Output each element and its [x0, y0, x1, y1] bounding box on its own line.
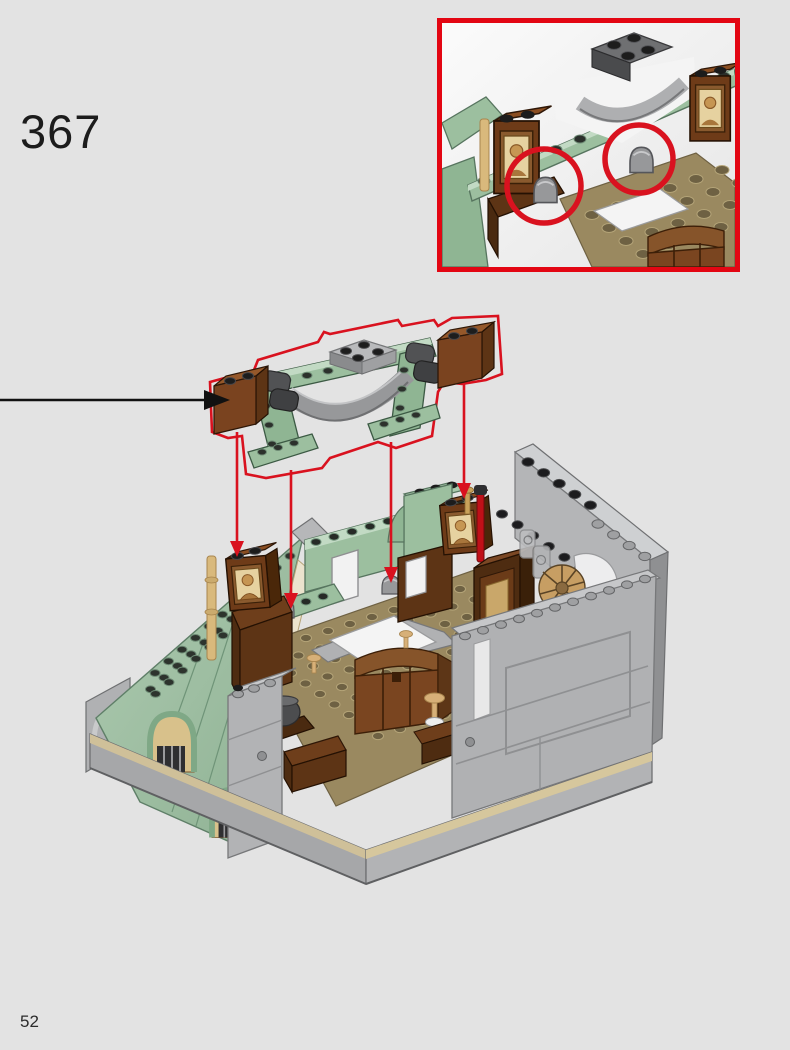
page-number: 52: [20, 1012, 39, 1032]
instruction-page: 367: [0, 0, 790, 1050]
portrait-brick: [225, 542, 282, 610]
bar-holder: [474, 485, 487, 495]
red-bar-piece: [477, 492, 484, 562]
zoom-callout: [437, 18, 740, 272]
tan-pole: [207, 556, 216, 660]
chest-latch: [392, 672, 401, 682]
callout-green-corner: [442, 97, 502, 149]
insert-arrow-icon: [0, 390, 230, 410]
arch-frame-part: [210, 316, 502, 478]
callout-illustration: [442, 23, 735, 267]
brown-brick-right: [438, 322, 494, 388]
